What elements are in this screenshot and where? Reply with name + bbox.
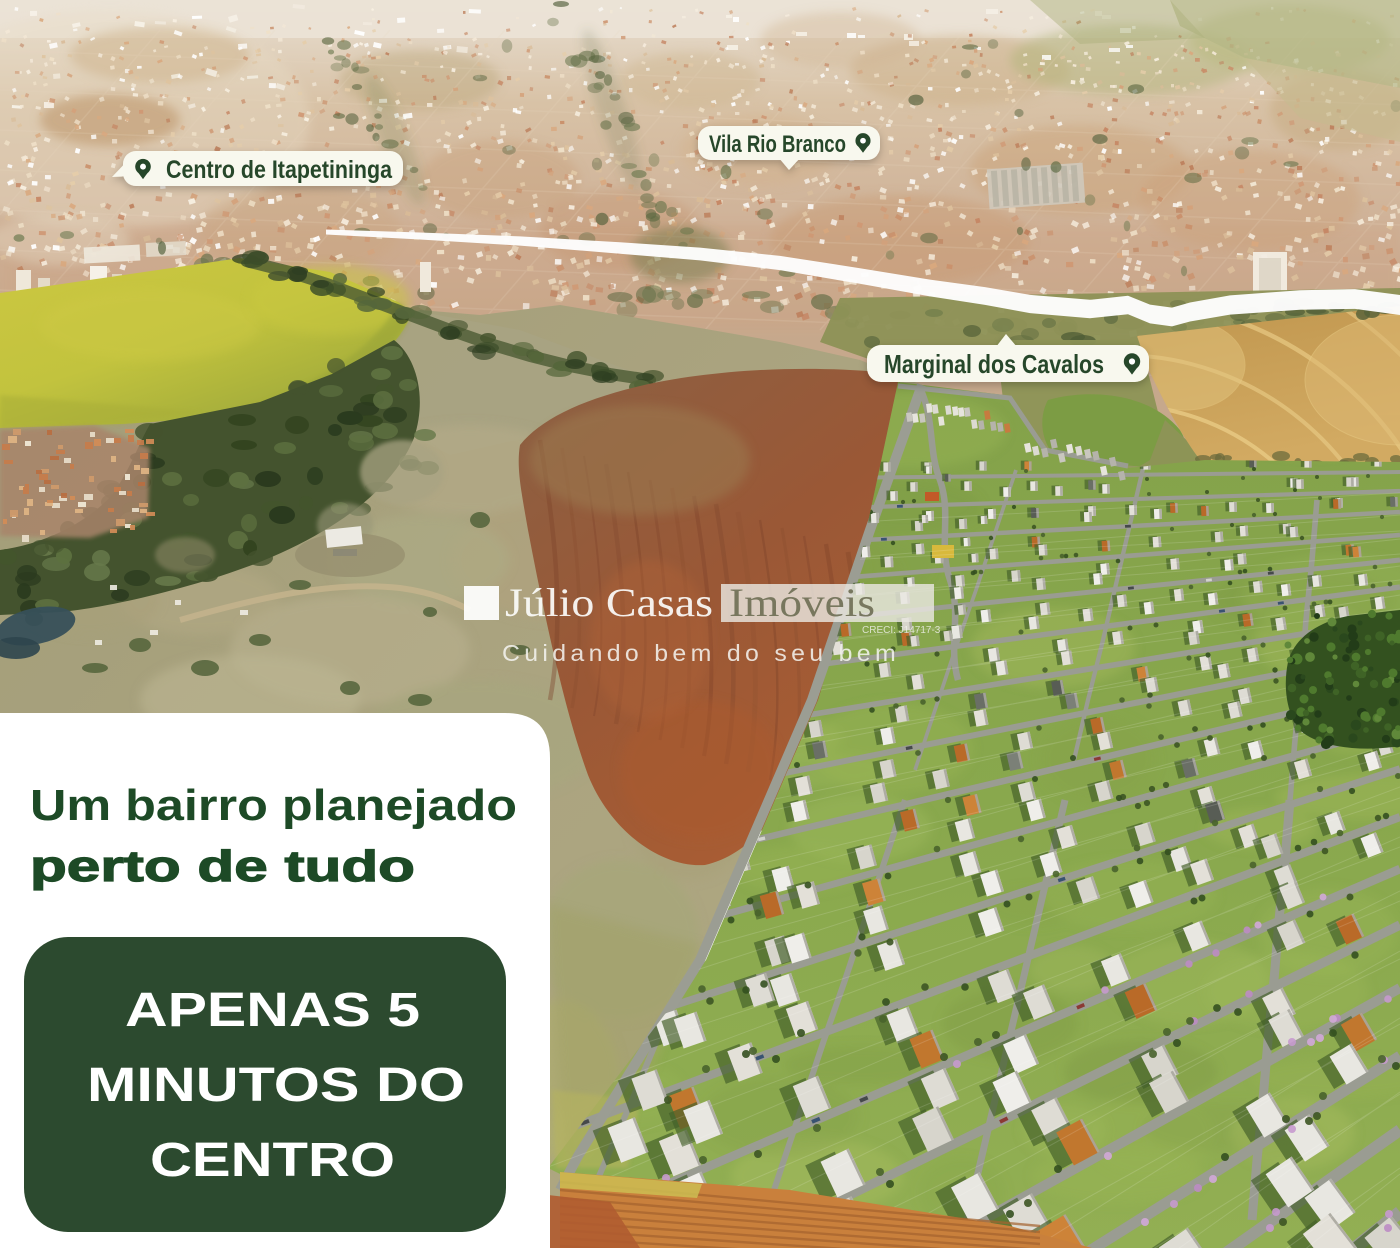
svg-text:APENAS 5: APENAS 5 xyxy=(125,984,420,1037)
svg-text:Centro de Itapetininga: Centro de Itapetininga xyxy=(166,156,393,184)
svg-text:MINUTOS DO: MINUTOS DO xyxy=(87,1059,465,1112)
svg-text:Marginal dos Cavalos: Marginal dos Cavalos xyxy=(884,349,1104,379)
svg-text:perto de tudo: perto de tudo xyxy=(30,842,415,891)
svg-text:Imóveis: Imóveis xyxy=(729,580,875,625)
svg-text:CRECI: J14717-3: CRECI: J14717-3 xyxy=(862,625,941,636)
svg-text:CENTRO: CENTRO xyxy=(150,1134,395,1187)
svg-text:Cuidando bem do seu bem: Cuidando bem do seu bem xyxy=(502,640,900,666)
svg-text:Vila Rio Branco: Vila Rio Branco xyxy=(709,131,846,158)
svg-text:Júlio Casas: Júlio Casas xyxy=(505,580,713,625)
svg-text:Um bairro planejado: Um bairro planejado xyxy=(30,781,517,830)
